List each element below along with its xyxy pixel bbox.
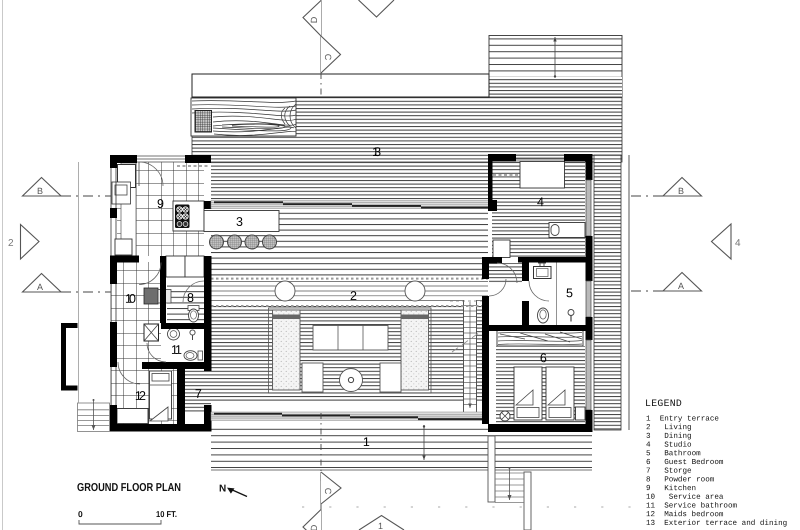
svg-text:12 Maids bedroom: 12 Maids bedroom xyxy=(646,510,724,519)
svg-text:C: C xyxy=(323,488,333,495)
svg-text:2: 2 xyxy=(350,289,357,303)
svg-text:A: A xyxy=(37,282,43,292)
svg-text:1: 1 xyxy=(378,521,383,530)
svg-text:8: 8 xyxy=(187,291,194,305)
svg-text:11 Service bathroom: 11 Service bathroom xyxy=(646,501,738,510)
svg-text:B: B xyxy=(37,186,43,196)
svg-text:4: 4 xyxy=(735,238,741,249)
svg-text:3 Dining: 3 Dining xyxy=(646,432,692,441)
svg-text:11: 11 xyxy=(171,343,182,357)
svg-text:LEGEND: LEGEND xyxy=(645,398,682,409)
svg-text:0: 0 xyxy=(78,509,83,519)
svg-text:GROUND FLOOR PLAN: GROUND FLOOR PLAN xyxy=(77,482,181,494)
svg-text:10 Service area: 10 Service area xyxy=(646,493,724,502)
svg-text:7: 7 xyxy=(195,387,202,401)
svg-text:8 Powder room: 8 Powder room xyxy=(646,475,715,484)
svg-text:10: 10 xyxy=(125,292,136,306)
svg-text:D: D xyxy=(309,524,319,530)
svg-text:1 Entry terrace: 1 Entry terrace xyxy=(646,414,719,423)
svg-text:2 Living: 2 Living xyxy=(646,423,692,432)
svg-text:13: 13 xyxy=(372,145,381,159)
svg-text:1: 1 xyxy=(363,435,370,449)
svg-text:10 FT.: 10 FT. xyxy=(156,509,177,519)
svg-text:2: 2 xyxy=(8,238,14,249)
svg-text:5 Bathroom: 5 Bathroom xyxy=(646,449,701,458)
svg-text:13 Exterior terrace and dinin: 13 Exterior terrace and dining xyxy=(646,519,787,528)
svg-text:3: 3 xyxy=(236,215,243,229)
svg-text:4 Studio: 4 Studio xyxy=(646,441,692,450)
svg-text:6 Guest Bedroom: 6 Guest Bedroom xyxy=(646,458,724,467)
svg-text:7 Storge: 7 Storge xyxy=(646,467,692,476)
svg-text:9: 9 xyxy=(157,197,164,211)
svg-text:D: D xyxy=(309,16,319,23)
svg-text:6: 6 xyxy=(540,351,547,365)
svg-text:B: B xyxy=(678,186,684,196)
svg-text:5: 5 xyxy=(566,286,573,300)
svg-text:9 Kitchen: 9 Kitchen xyxy=(646,484,696,493)
svg-text:C: C xyxy=(323,54,333,61)
svg-text:A: A xyxy=(678,281,684,291)
svg-text:12: 12 xyxy=(135,389,146,403)
svg-text:N: N xyxy=(219,483,226,494)
svg-text:4: 4 xyxy=(537,195,544,209)
